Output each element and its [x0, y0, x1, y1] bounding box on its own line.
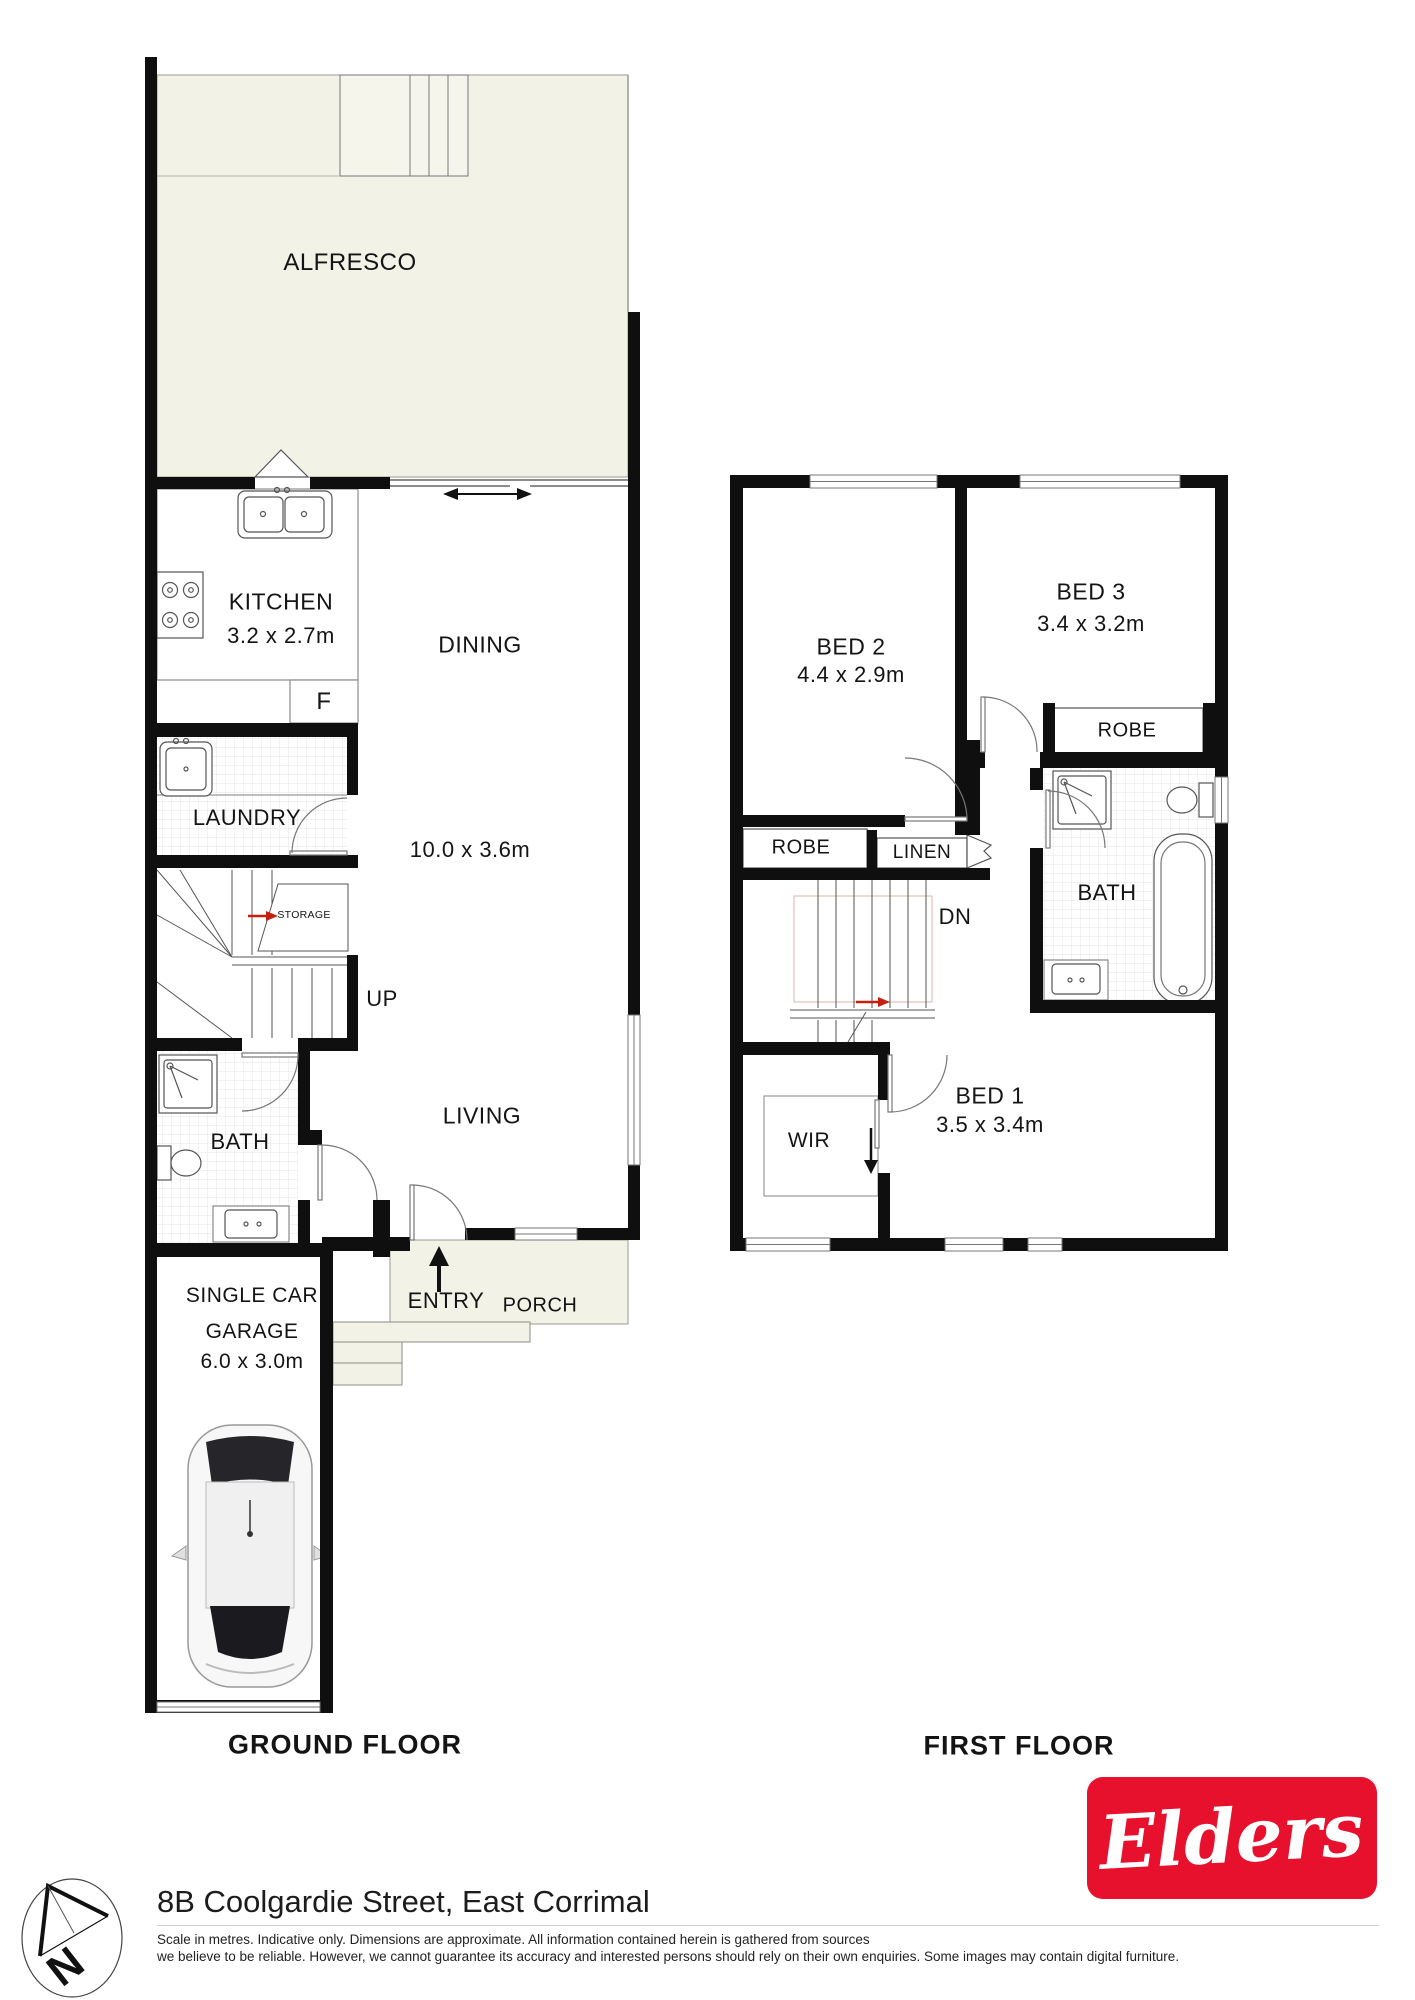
- kitchen-dims: 3.2 x 2.7m: [227, 623, 335, 649]
- vanity-icon-first: [1044, 960, 1108, 1000]
- floor-plan-drawing: N Elders: [0, 0, 1415, 2000]
- elders-logo-text: Elders: [1095, 1787, 1365, 1887]
- entry-label: ENTRY: [408, 1288, 485, 1314]
- elders-logo: Elders: [1087, 1777, 1377, 1899]
- bed3-dims: 3.4 x 3.2m: [1037, 611, 1145, 637]
- footer-divider: [157, 1925, 1379, 1926]
- robe-bed2-label: ROBE: [772, 837, 831, 860]
- bed1-dims: 3.5 x 3.4m: [936, 1112, 1044, 1138]
- dn-label: DN: [939, 904, 972, 930]
- disclaimer-line-1: Scale in metres. Indicative only. Dimens…: [157, 1932, 870, 1948]
- garage-label-1: SINGLE CAR: [186, 1284, 318, 1308]
- north-compass-icon: N: [22, 1879, 122, 1997]
- first-stairs: [790, 880, 935, 1042]
- kitchen-label: KITCHEN: [229, 589, 333, 616]
- shower-icon: [159, 1055, 217, 1113]
- bed1-label: BED 1: [956, 1083, 1025, 1110]
- laundry-label: LAUNDRY: [193, 805, 301, 831]
- bed2-label: BED 2: [817, 634, 886, 661]
- kitchen-sink-icon: [238, 488, 332, 539]
- bed3-label: BED 3: [1057, 579, 1126, 606]
- up-label: UP: [366, 986, 398, 1012]
- cooktop-icon: [157, 572, 203, 638]
- ground-floor-plan: [145, 57, 640, 1713]
- laundry-tub-icon: [160, 739, 212, 797]
- ground-stairs: [157, 870, 358, 1038]
- storage-label: STORAGE: [277, 909, 330, 921]
- linen-label: LINEN: [893, 842, 951, 864]
- first-bath-label: BATH: [1077, 880, 1136, 906]
- alfresco-label: ALFRESCO: [283, 249, 416, 277]
- vanity-icon: [213, 1206, 289, 1242]
- floorplan-page: N Elders ALFRESCO KITCHEN 3.2 x 2.7m DIN…: [0, 0, 1415, 2000]
- car-top-view: [172, 1425, 328, 1687]
- garage-label-2: GARAGE: [206, 1320, 299, 1344]
- robe-bed3-label: ROBE: [1098, 720, 1157, 743]
- garage-dims: 6.0 x 3.0m: [200, 1350, 303, 1374]
- sliding-door: [390, 480, 628, 486]
- shower-icon-first: [1053, 771, 1111, 829]
- bathtub-icon: [1154, 834, 1212, 1011]
- porch-label: PORCH: [503, 1295, 578, 1318]
- ground-floor-title: GROUND FLOOR: [228, 1730, 462, 1761]
- property-address: 8B Coolgardie Street, East Corrimal: [157, 1884, 650, 1920]
- first-floor-title: FIRST FLOOR: [924, 1731, 1115, 1762]
- disclaimer-line-2: we believe to be reliable. However, we c…: [157, 1949, 1179, 1965]
- stair-down-arrow-icon: [856, 997, 890, 1007]
- living-dining-dims: 10.0 x 3.6m: [410, 837, 530, 863]
- linen-door: [967, 835, 991, 868]
- fridge-label: F: [316, 688, 331, 716]
- sliding-door-arrow-icon: [443, 488, 532, 500]
- bed2-dims: 4.4 x 2.9m: [797, 662, 905, 688]
- wir-label: WIR: [788, 1129, 830, 1153]
- living-label: LIVING: [443, 1103, 521, 1130]
- ground-bath-label: BATH: [210, 1129, 269, 1155]
- dining-label: DINING: [438, 632, 522, 659]
